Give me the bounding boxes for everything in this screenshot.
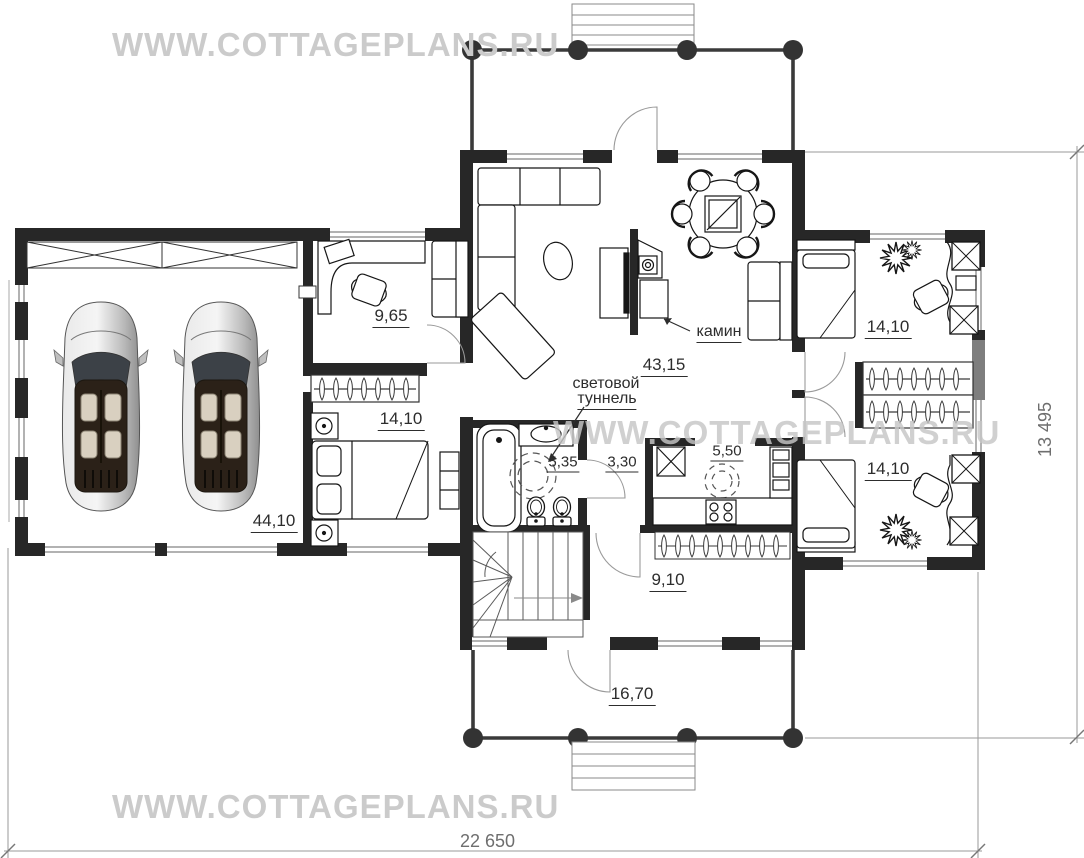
fireplace-icon <box>638 240 668 318</box>
window <box>843 557 927 570</box>
bed-icon <box>797 460 855 552</box>
printer-icon <box>956 276 976 290</box>
bathroom-area-label: 5,35 <box>546 454 579 473</box>
shelf-icon <box>162 242 297 268</box>
nightstand-icon <box>311 520 338 546</box>
window <box>15 340 28 378</box>
entry-door-arc <box>614 107 657 150</box>
cabinet-icon <box>950 306 978 334</box>
bedroom-right-bottom-area-label: 14,10 <box>865 459 912 481</box>
cabinet-icon <box>952 242 980 270</box>
dresser-icon <box>440 452 459 509</box>
window <box>330 228 425 241</box>
bottom-terrace <box>463 650 803 790</box>
garage-area-label: 44,10 <box>251 511 298 533</box>
stairs-icon <box>473 532 583 637</box>
bedroom-right-top-area-label: 14,10 <box>865 317 912 339</box>
bidet-icon <box>553 497 571 526</box>
cabinet-icon <box>950 517 978 545</box>
coffee-table-icon <box>540 239 577 283</box>
toilet-icon <box>527 497 545 526</box>
corridor-room <box>473 532 790 637</box>
plant-icon <box>880 240 922 274</box>
dining-set-icon <box>672 165 774 262</box>
garage-room <box>27 242 297 511</box>
window <box>678 150 762 163</box>
wardrobe-icon <box>311 375 419 402</box>
window <box>870 230 945 243</box>
light-tunnel-label-line2: туннель <box>577 390 636 410</box>
watermark-top: WWW.COTTAGEPLANS.RU <box>112 26 559 64</box>
watermark-bottom: WWW.COTTAGEPLANS.RU <box>112 788 559 826</box>
terrace-door-opening <box>547 637 610 650</box>
office-chair-icon <box>348 272 391 309</box>
corridor-area-label: 9,10 <box>649 570 686 592</box>
overall-width-dimension: 22 650 <box>460 831 515 852</box>
window <box>15 285 28 302</box>
pillow-icon <box>317 446 341 476</box>
stove-icon <box>706 500 736 524</box>
corner-sofa-icon <box>470 168 600 381</box>
office-chair-icon <box>909 277 953 317</box>
bedroom-top-door-arc <box>805 352 845 392</box>
light-tunnel-icon <box>705 464 739 498</box>
garage-door-opening <box>45 543 155 556</box>
overall-height-dimension: 13 495 <box>1035 402 1056 457</box>
bedroom-left-room <box>311 375 459 546</box>
study-door-arc <box>427 325 465 363</box>
living-room-area-label: 43,15 <box>641 355 688 377</box>
window <box>15 418 28 457</box>
cabinet-icon <box>952 455 980 483</box>
sofa-icon <box>748 262 792 340</box>
pillow-icon <box>803 528 849 542</box>
fireplace-label: камин <box>696 323 741 343</box>
nightstand-icon <box>311 413 338 439</box>
pillow-icon <box>803 254 849 268</box>
wardrobe-icon <box>863 362 973 395</box>
window <box>15 500 28 517</box>
pillow-icon <box>317 484 341 514</box>
window <box>347 543 428 556</box>
bedroom-left-area-label: 14,10 <box>378 409 425 431</box>
window <box>472 637 507 650</box>
sofa-icon <box>432 241 468 317</box>
study-area-label: 9,65 <box>372 306 409 328</box>
corridor-door-arc <box>596 533 640 577</box>
terrace-door-arc <box>568 650 610 692</box>
entry-door-opening <box>612 150 657 163</box>
floor-plan-page: WWW.COTTAGEPLANS.RU WWW.COTTAGEPLANS.RU … <box>0 0 1084 858</box>
kitchen-appliances-icon <box>770 447 792 498</box>
window <box>760 637 792 650</box>
fireplace-partition-wall <box>630 229 638 335</box>
bathtub-icon <box>477 424 521 532</box>
garage-door-opening <box>167 543 277 556</box>
tv-stand-icon <box>600 248 629 318</box>
bed-icon <box>312 441 428 519</box>
panel-icon <box>299 286 316 298</box>
hall-area-label: 3,30 <box>605 454 638 473</box>
window <box>507 150 583 163</box>
window <box>658 637 722 650</box>
watermark-middle: WWW.COTTAGEPLANS.RU <box>553 414 1000 452</box>
shelf-icon <box>27 242 162 268</box>
wardrobe-icon <box>655 532 790 559</box>
office-chair-icon <box>909 470 953 510</box>
terrace-area-label: 16,70 <box>609 684 656 706</box>
plant-icon <box>880 514 922 550</box>
bed-icon <box>797 240 855 338</box>
right-wing <box>797 240 980 552</box>
